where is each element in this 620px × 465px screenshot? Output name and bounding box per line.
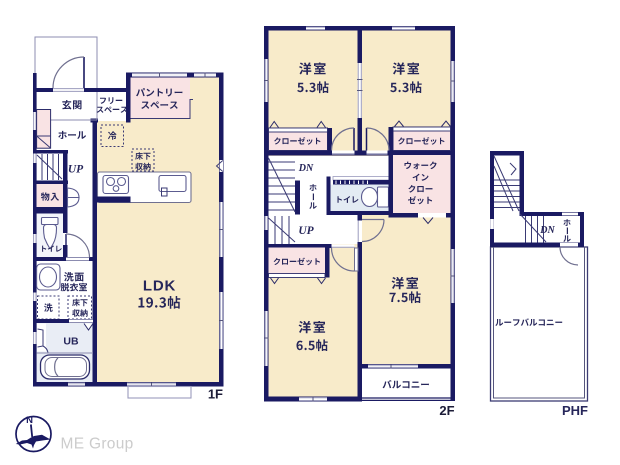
svg-text:N: N: [26, 415, 33, 426]
svg-text:DN: DN: [539, 225, 555, 236]
svg-text:DN: DN: [298, 163, 314, 174]
svg-text:UB: UB: [63, 336, 79, 348]
svg-text:UP: UP: [298, 225, 314, 237]
svg-text:ME Group: ME Group: [61, 436, 134, 453]
svg-text:UP: UP: [68, 164, 84, 176]
svg-text:2F: 2F: [439, 403, 454, 418]
svg-text:PHF: PHF: [562, 403, 588, 418]
svg-text:LDK: LDK: [143, 278, 176, 295]
svg-text:1F: 1F: [208, 387, 223, 402]
